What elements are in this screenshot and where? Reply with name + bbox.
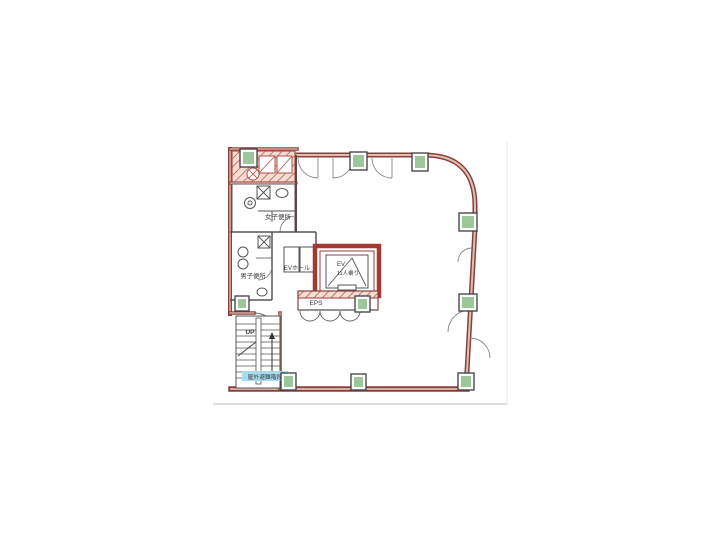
womens-toilet-label: 女子便所 xyxy=(265,212,292,221)
elevator-door xyxy=(338,285,356,290)
column-marker xyxy=(412,153,428,171)
escape-stair-label: 屋外避難階段 xyxy=(248,373,283,381)
column-marker xyxy=(458,373,474,390)
elevator-shaft: EV 11人乗り xyxy=(315,246,379,296)
toilet-fixture xyxy=(257,288,267,296)
mens-toilet-label: 男子便所 xyxy=(240,271,266,280)
floorplan-image: 女子便所 男子便所 EVホール EV 11人乗り EPS xyxy=(0,0,720,541)
column-marker xyxy=(240,149,257,167)
column-marker xyxy=(350,152,367,170)
up-label: UP xyxy=(245,329,255,336)
eps-label: EPS xyxy=(309,300,323,307)
escape-stairwell: UP 屋外避難階段 xyxy=(236,316,288,388)
sink-fixture xyxy=(238,247,248,257)
elevator-capacity-label: 11人乗り xyxy=(337,270,359,277)
womens-toilet-room xyxy=(232,184,296,232)
floorplan-svg: 女子便所 男子便所 EVホール EV 11人乗り EPS xyxy=(0,0,720,541)
elevator-label: EV xyxy=(337,262,345,268)
sink-fixture xyxy=(238,259,248,269)
ev-hall-label: EVホール xyxy=(284,265,310,272)
column-marker xyxy=(459,294,477,311)
column-marker xyxy=(235,296,249,311)
column-marker xyxy=(281,373,296,390)
column-marker xyxy=(459,213,477,231)
column-marker xyxy=(355,296,370,312)
column-marker xyxy=(351,374,366,390)
